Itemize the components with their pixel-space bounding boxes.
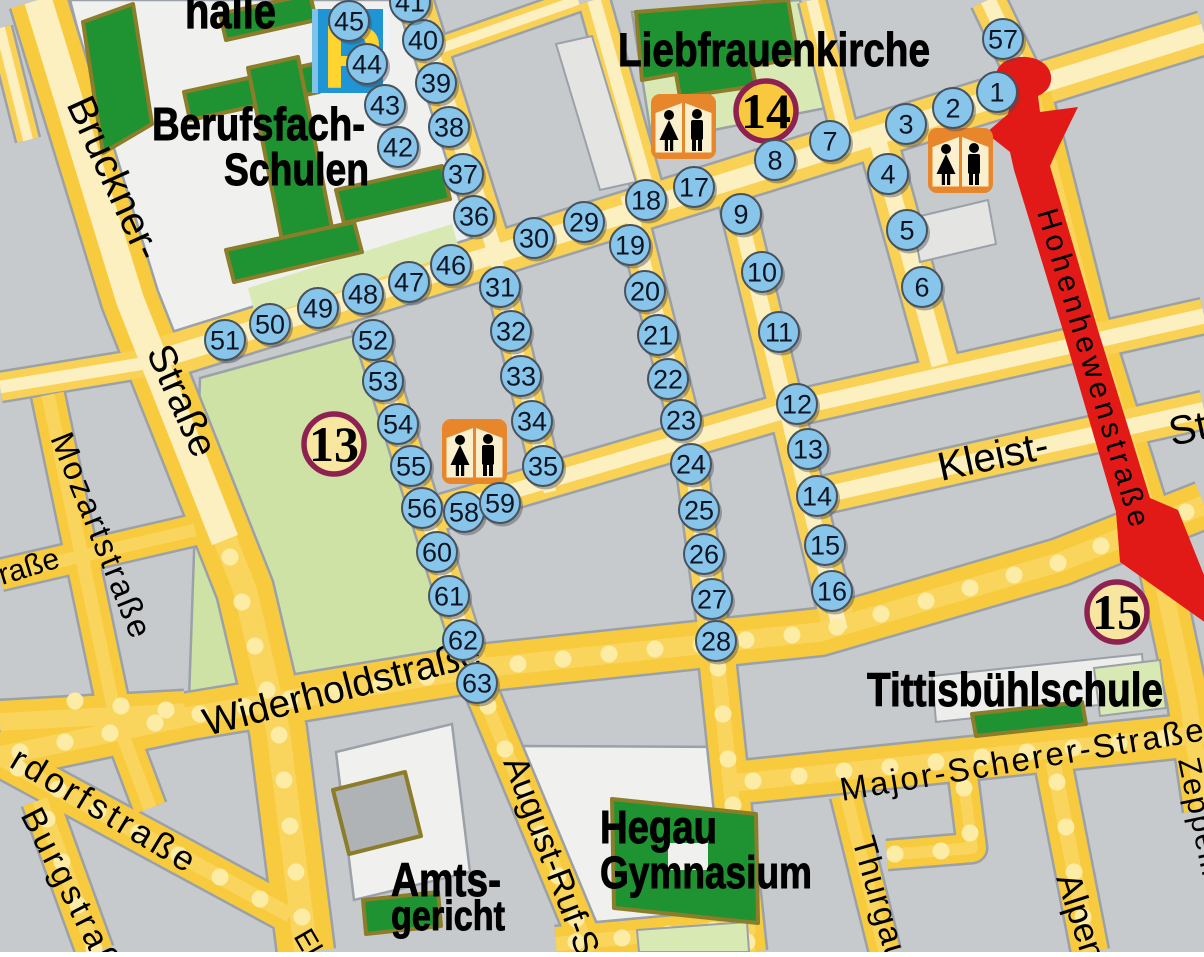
- svg-text:19: 19: [615, 231, 645, 261]
- svg-text:46: 46: [436, 251, 466, 281]
- svg-text:gericht: gericht: [391, 893, 505, 940]
- svg-text:45: 45: [334, 7, 364, 37]
- svg-text:10: 10: [747, 258, 777, 288]
- svg-text:7: 7: [822, 127, 837, 157]
- svg-text:60: 60: [422, 538, 452, 568]
- svg-text:43: 43: [370, 91, 400, 121]
- svg-text:18: 18: [631, 186, 661, 216]
- svg-text:Hegau: Hegau: [600, 801, 717, 853]
- svg-text:Schulen: Schulen: [224, 143, 369, 194]
- svg-text:44: 44: [352, 50, 382, 80]
- svg-text:27: 27: [697, 585, 727, 615]
- svg-text:13: 13: [793, 435, 823, 465]
- svg-text:29: 29: [569, 208, 599, 238]
- svg-text:38: 38: [434, 113, 464, 143]
- svg-text:39: 39: [421, 69, 451, 99]
- svg-text:8: 8: [767, 146, 782, 176]
- svg-text:17: 17: [679, 173, 709, 203]
- svg-text:15: 15: [1092, 584, 1142, 640]
- svg-text:35: 35: [528, 452, 558, 482]
- svg-text:49: 49: [303, 294, 333, 324]
- svg-text:37: 37: [448, 160, 478, 190]
- svg-text:54: 54: [383, 410, 413, 440]
- svg-text:53: 53: [368, 367, 398, 397]
- svg-text:61: 61: [434, 582, 464, 612]
- svg-text:42: 42: [383, 133, 413, 163]
- svg-text:63: 63: [462, 669, 492, 699]
- svg-text:11: 11: [765, 318, 793, 348]
- svg-text:15: 15: [810, 531, 840, 561]
- svg-text:21: 21: [643, 321, 673, 351]
- svg-text:14: 14: [741, 83, 791, 139]
- svg-text:14: 14: [802, 482, 832, 512]
- svg-text:6: 6: [914, 273, 929, 303]
- svg-text:23: 23: [666, 406, 696, 436]
- svg-text:halle: halle: [185, 0, 276, 39]
- svg-text:1: 1: [989, 78, 1004, 108]
- svg-text:52: 52: [358, 326, 388, 356]
- svg-text:26: 26: [689, 540, 719, 570]
- svg-text:9: 9: [733, 200, 748, 230]
- svg-text:Gymnasium: Gymnasium: [600, 848, 812, 898]
- svg-text:25: 25: [684, 496, 714, 526]
- svg-text:22: 22: [653, 365, 683, 395]
- svg-text:16: 16: [817, 577, 847, 607]
- svg-text:59: 59: [485, 489, 515, 519]
- svg-text:51: 51: [210, 326, 240, 356]
- svg-text:20: 20: [630, 277, 660, 307]
- svg-text:Liebfrauenkirche: Liebfrauenkirche: [618, 24, 930, 76]
- svg-text:34: 34: [517, 407, 547, 437]
- svg-text:24: 24: [676, 450, 706, 480]
- svg-text:2: 2: [945, 94, 960, 124]
- svg-text:58: 58: [449, 498, 479, 528]
- svg-text:50: 50: [255, 310, 285, 340]
- svg-text:57: 57: [988, 25, 1018, 55]
- svg-text:55: 55: [396, 452, 426, 482]
- svg-text:4: 4: [880, 160, 895, 190]
- svg-text:56: 56: [407, 494, 437, 524]
- svg-text:3: 3: [898, 110, 913, 140]
- svg-text:33: 33: [506, 362, 536, 392]
- svg-text:13: 13: [309, 416, 359, 472]
- svg-text:48: 48: [348, 280, 378, 310]
- svg-text:36: 36: [459, 202, 489, 232]
- svg-text:31: 31: [485, 273, 515, 303]
- svg-text:28: 28: [701, 627, 731, 657]
- svg-text:30: 30: [519, 224, 549, 254]
- svg-text:Tittisbühlschule: Tittisbühlschule: [867, 664, 1163, 716]
- svg-text:32: 32: [496, 317, 526, 347]
- svg-text:40: 40: [408, 26, 438, 56]
- svg-text:62: 62: [448, 626, 478, 656]
- svg-text:5: 5: [899, 216, 914, 246]
- svg-text:41: 41: [395, 0, 425, 18]
- svg-text:47: 47: [394, 268, 424, 298]
- svg-text:12: 12: [782, 390, 812, 420]
